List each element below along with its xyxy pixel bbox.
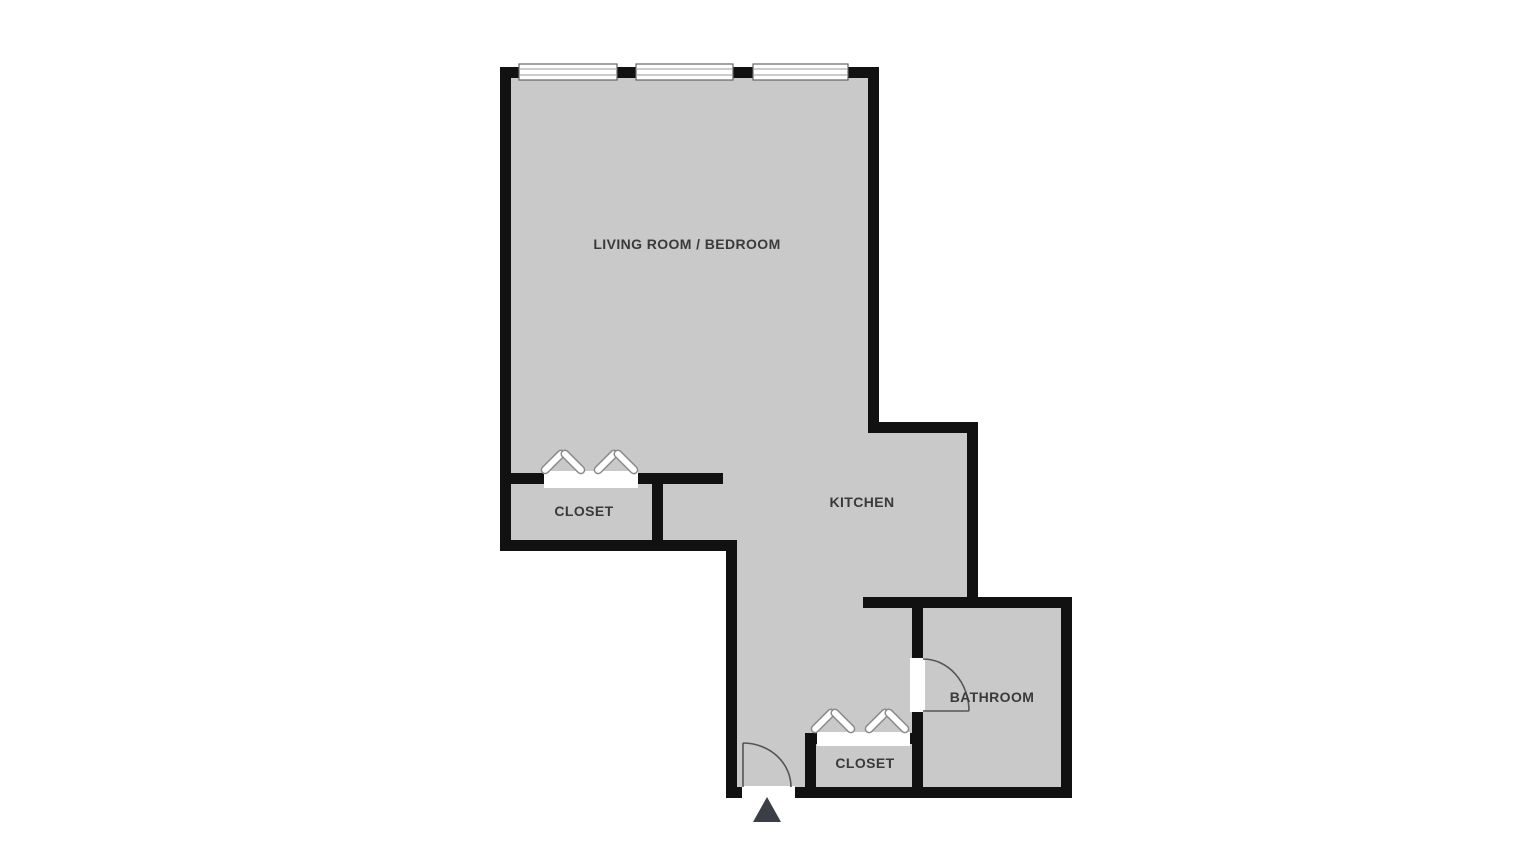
- window-icon: [519, 64, 617, 80]
- bathroom-door-opening: [910, 658, 925, 712]
- window-icon: [636, 64, 733, 80]
- floor-plan: LIVING ROOM / BEDROOM CLOSET KITCHEN CLO…: [0, 0, 1520, 855]
- entry-opening: [742, 786, 795, 799]
- wall-bathroom-top: [863, 597, 1072, 608]
- room-label-living-room: LIVING ROOM / BEDROOM: [593, 236, 780, 252]
- window-icon: [753, 64, 848, 80]
- wall-upper-closet-top-stub: [500, 473, 545, 484]
- room-label-lower-closet: CLOSET: [835, 755, 894, 771]
- entry-arrow-icon: [753, 797, 781, 822]
- wall-bathroom-right: [1061, 597, 1072, 798]
- floor-plan-svg: [0, 0, 1520, 855]
- room-label-upper-closet: CLOSET: [554, 503, 613, 519]
- room-label-kitchen: KITCHEN: [829, 494, 894, 510]
- room-label-bathroom: BATHROOM: [950, 689, 1035, 705]
- wall-hall-left: [726, 541, 737, 798]
- wall-upper-closet-top-right: [637, 473, 723, 484]
- wall-livingroom-right: [868, 67, 879, 433]
- wall-step-top: [868, 422, 978, 433]
- lower-closet-opening: [817, 732, 910, 746]
- wall-kitchen-right: [967, 422, 978, 608]
- windows-group: [519, 64, 848, 80]
- wall-upper-closet-bottom: [500, 540, 737, 551]
- wall-upper-closet-right: [652, 473, 663, 551]
- upper-closet-opening: [544, 471, 638, 488]
